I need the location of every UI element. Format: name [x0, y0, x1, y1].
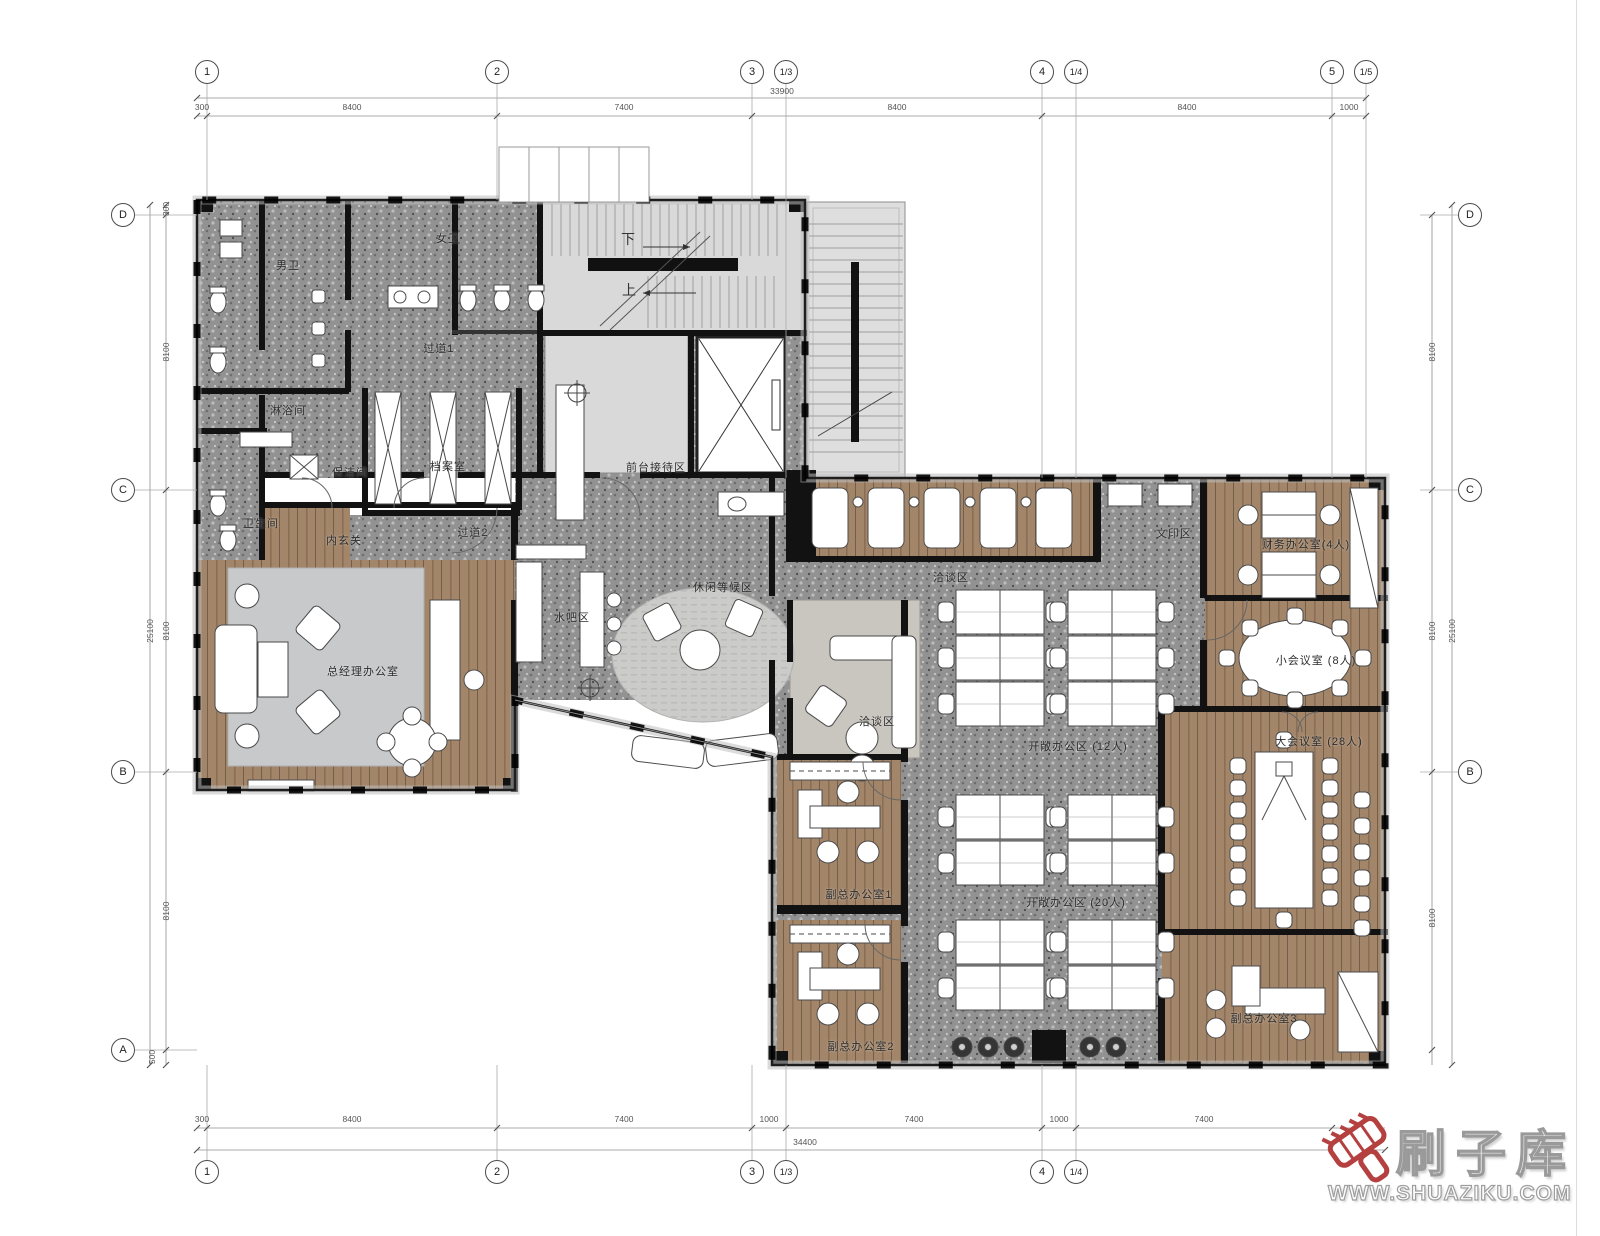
dim-right-8100c: 8100	[1427, 909, 1437, 928]
dim-bottom-7400a: 7400	[615, 1114, 634, 1124]
exterior-louver-boxes	[499, 147, 649, 202]
room-label-inner-foyer: 内玄关	[326, 532, 362, 548]
room-label-archive-room: 档案室	[430, 458, 466, 474]
room-label-water-bar: 水吧区	[554, 609, 590, 625]
grid-bubble-top-1-3: 1/3	[774, 60, 798, 84]
grid-bubble-bottom-3: 3	[740, 1160, 764, 1184]
dim-left-total: 25100	[145, 619, 155, 643]
grid-bubble-top-4: 4	[1030, 60, 1054, 84]
grid-bubble-left-D: D	[111, 203, 135, 227]
grid-bubble-top-1: 1	[195, 60, 219, 84]
room-label-vp-office-1: 副总办公室1	[825, 886, 892, 902]
dim-top-8400c: 8400	[1178, 102, 1197, 112]
room-label-negotiation-2: 洽谈区	[859, 713, 895, 729]
grid-bubble-left-B: B	[111, 760, 135, 784]
room-label-finance-office: 财务办公室(4人)	[1262, 536, 1350, 552]
dim-bottom-8400: 8400	[343, 1114, 362, 1124]
dim-left-500: 500	[147, 1050, 157, 1064]
dim-top-300: 300	[195, 102, 209, 112]
room-label-shower-room: 淋浴间	[270, 402, 306, 418]
grid-bubble-right-B: B	[1458, 760, 1482, 784]
dim-top-total: 33900	[770, 86, 794, 96]
grid-bubble-top-3: 3	[740, 60, 764, 84]
grid-bubble-right-C: C	[1458, 478, 1482, 502]
room-label-vp-office-3: 副总办公室3	[1230, 1010, 1297, 1026]
room-label-corridor-1: 过道1	[423, 340, 454, 356]
grid-bubble-bottom-2: 2	[485, 1160, 509, 1184]
grid-bubble-top-1-4: 1/4	[1064, 60, 1088, 84]
grid-bubble-top-5: 5	[1320, 60, 1344, 84]
floor-plan-drawing	[0, 0, 1600, 1236]
dim-top-7400: 7400	[615, 102, 634, 112]
dim-left-8100c: 8100	[161, 902, 171, 921]
room-label-small-meeting: 小会议室 (8人)	[1276, 652, 1357, 668]
room-label-corridor-2: 过道2	[457, 524, 488, 540]
dim-left-8100a: 8100	[161, 343, 171, 362]
watermark: 刷子库 WWW.SHUAZIKU.COM	[1318, 1096, 1578, 1226]
room-label-waiting-area: 休闲等候区	[693, 579, 753, 595]
floor-plan-sheet: 1 2 3 1/3 4 1/4 5 1/5 1 2 3 1/3 4 1/4 D …	[0, 0, 1600, 1236]
dim-bottom-1000b: 1000	[1050, 1114, 1069, 1124]
dim-bottom-300: 300	[195, 1114, 209, 1124]
grid-bubble-bottom-4: 4	[1030, 1160, 1054, 1184]
stair-down-label: 下	[621, 229, 635, 249]
dim-bottom-1000a: 1000	[760, 1114, 779, 1124]
grid-bubble-bottom-1-3: 1/3	[774, 1160, 798, 1184]
dim-right-8100b: 8100	[1427, 622, 1437, 641]
room-label-open-office-20: 开敞办公区 (20人)	[1026, 894, 1126, 910]
room-label-bathroom: 卫生间	[243, 515, 279, 531]
dim-right-8100a: 8100	[1427, 343, 1437, 362]
grid-bubble-bottom-1-4: 1/4	[1064, 1160, 1088, 1184]
stair-up-label: 上	[622, 280, 636, 300]
dim-left-8100b: 8100	[161, 622, 171, 641]
grid-bubble-bottom-1: 1	[195, 1160, 219, 1184]
room-label-mens-toilet: 男卫	[276, 257, 300, 273]
grid-bubble-left-C: C	[111, 478, 135, 502]
room-label-open-office-12: 开敞办公区 (12人)	[1028, 738, 1128, 754]
room-label-reception-area: 前台接待区	[626, 459, 686, 475]
watermark-url: WWW.SHUAZIKU.COM	[1328, 1182, 1571, 1206]
dim-left-300: 300	[161, 202, 171, 216]
room-label-large-meeting: 大会议室 (28人)	[1275, 733, 1363, 749]
room-label-negotiation-1: 洽谈区	[933, 569, 969, 585]
room-label-print-area: 文印区	[1156, 525, 1192, 541]
grid-bubble-left-A: A	[111, 1038, 135, 1062]
dim-top-8400b: 8400	[888, 102, 907, 112]
room-label-gm-office: 总经理办公室	[327, 663, 399, 679]
dim-bottom-7400c: 7400	[1195, 1114, 1214, 1124]
dim-right-total: 25100	[1447, 619, 1457, 643]
dim-top-1000: 1000	[1340, 102, 1359, 112]
room-label-cleaning-room: 保洁间	[332, 464, 368, 480]
watermark-brand: 刷子库	[1396, 1114, 1576, 1186]
sheet-border	[1576, 0, 1577, 1236]
grid-bubble-top-1-5: 1/5	[1354, 60, 1378, 84]
room-label-womens-toilet: 女卫	[436, 230, 460, 246]
dim-top-8400a: 8400	[343, 102, 362, 112]
room-label-vp-office-2: 副总办公室2	[827, 1038, 894, 1054]
dim-bottom-total: 34400	[793, 1137, 817, 1147]
grid-bubble-right-D: D	[1458, 203, 1482, 227]
dim-bottom-7400b: 7400	[905, 1114, 924, 1124]
grid-bubble-top-2: 2	[485, 60, 509, 84]
